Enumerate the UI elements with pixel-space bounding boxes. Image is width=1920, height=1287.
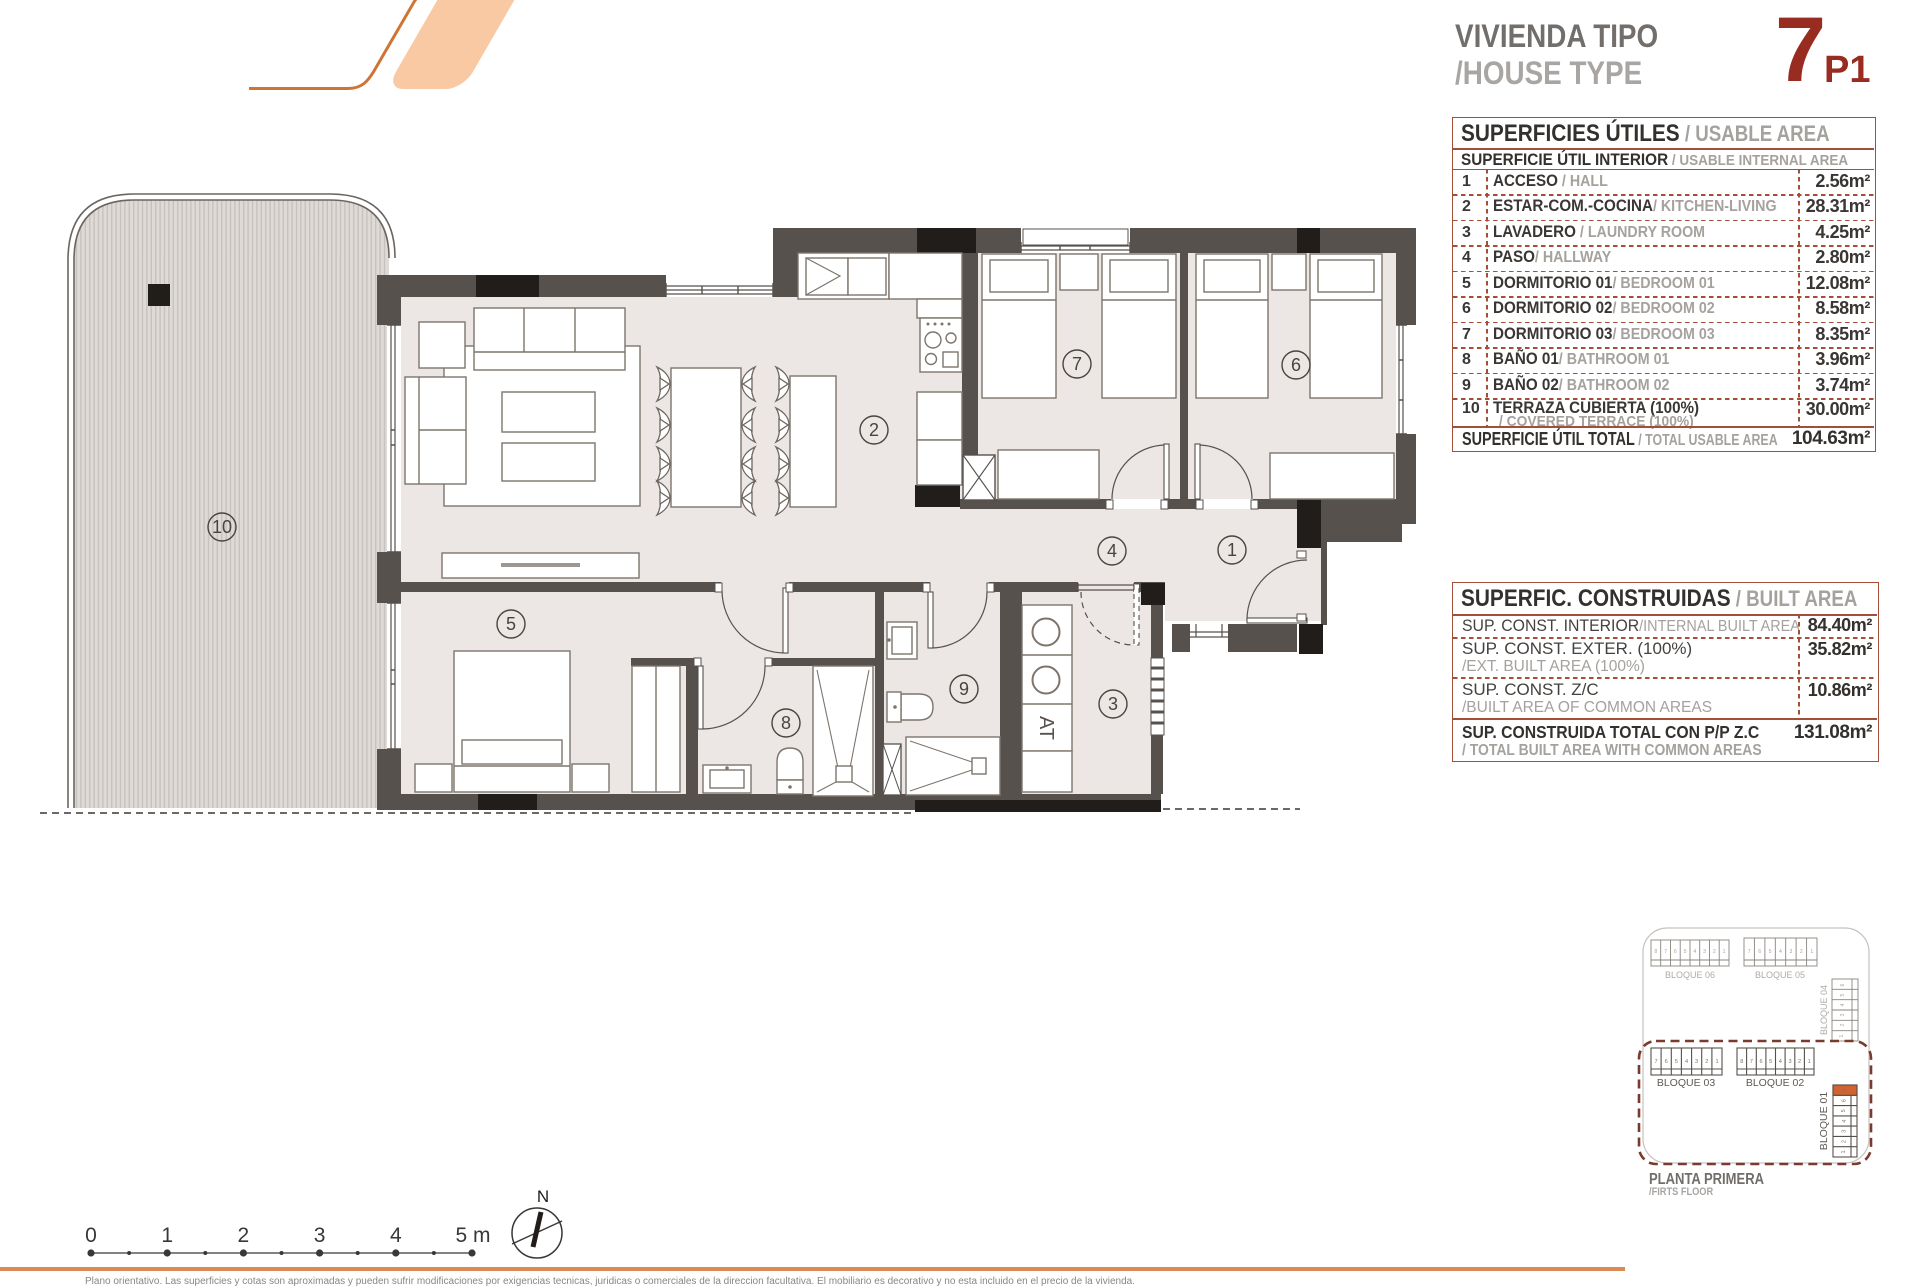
svg-text:6: 6: [1758, 949, 1761, 955]
svg-text:BLOQUE 06: BLOQUE 06: [1665, 970, 1715, 980]
svg-text:7: 7: [1748, 949, 1751, 955]
svg-text:6: 6: [1842, 1099, 1848, 1102]
svg-text:4: 4: [390, 1224, 402, 1247]
svg-text:2: 2: [1840, 1023, 1846, 1026]
svg-text:5: 5: [1684, 949, 1687, 955]
svg-text:4: 4: [1107, 541, 1117, 561]
svg-text:5: 5: [1769, 949, 1772, 955]
svg-text:1: 1: [1808, 1059, 1811, 1065]
svg-text:0: 0: [85, 1224, 97, 1247]
svg-text:2: 2: [869, 420, 879, 440]
svg-text:7: 7: [1664, 949, 1667, 955]
svg-text:7: 7: [1654, 1059, 1657, 1065]
svg-text:BLOQUE 04: BLOQUE 04: [1819, 985, 1829, 1035]
svg-text:4: 4: [1842, 1119, 1848, 1122]
svg-text:2: 2: [1841, 1140, 1847, 1143]
svg-text:7: 7: [1842, 1088, 1848, 1091]
svg-text:3: 3: [1840, 1013, 1846, 1016]
svg-text:1: 1: [1227, 540, 1237, 560]
svg-text:4: 4: [1840, 1003, 1846, 1006]
svg-text:1: 1: [1810, 949, 1813, 955]
svg-text:N: N: [537, 1187, 549, 1206]
svg-text:5: 5: [1841, 1109, 1847, 1112]
svg-text:3: 3: [1108, 694, 1118, 714]
svg-text:5: 5: [506, 614, 516, 634]
svg-text:BLOQUE 05: BLOQUE 05: [1755, 970, 1805, 980]
svg-text:3: 3: [1695, 1059, 1698, 1065]
svg-text:8: 8: [1654, 949, 1657, 955]
svg-text:1: 1: [161, 1224, 173, 1247]
svg-text:1: 1: [1841, 1150, 1847, 1153]
svg-text:5: 5: [1675, 1059, 1678, 1065]
svg-text:2: 2: [238, 1224, 250, 1247]
svg-text:1: 1: [1715, 1059, 1718, 1065]
svg-text:6: 6: [1665, 1059, 1668, 1065]
svg-text:1: 1: [1723, 949, 1726, 955]
svg-text:6: 6: [1291, 355, 1301, 375]
svg-text:8: 8: [1740, 1059, 1743, 1065]
svg-text:2: 2: [1705, 1059, 1708, 1065]
svg-text:4: 4: [1685, 1059, 1688, 1065]
svg-text:4: 4: [1779, 1059, 1782, 1065]
svg-text:4: 4: [1693, 949, 1696, 955]
svg-text:BLOQUE 02: BLOQUE 02: [1746, 1077, 1805, 1089]
svg-text:7: 7: [1072, 354, 1082, 374]
svg-text:3: 3: [1789, 949, 1792, 955]
svg-text:2: 2: [1713, 949, 1716, 955]
svg-text:8: 8: [781, 713, 791, 733]
svg-text:4: 4: [1779, 949, 1782, 955]
svg-text:9: 9: [959, 679, 969, 699]
svg-text:BLOQUE 03: BLOQUE 03: [1657, 1077, 1716, 1089]
svg-text:10: 10: [212, 517, 232, 537]
svg-text:5: 5: [1769, 1059, 1772, 1065]
svg-text:2: 2: [1798, 1059, 1801, 1065]
svg-text:6: 6: [1674, 949, 1677, 955]
svg-text:6: 6: [1760, 1059, 1763, 1065]
svg-text:AT: AT: [1035, 716, 1057, 740]
svg-text:BLOQUE 01: BLOQUE 01: [1818, 1092, 1830, 1151]
svg-text:7: 7: [1750, 1059, 1753, 1065]
svg-text:3: 3: [1703, 949, 1706, 955]
svg-text:1: 1: [1839, 1034, 1845, 1037]
svg-text:6: 6: [1840, 983, 1846, 986]
svg-text:5: 5: [1840, 993, 1846, 996]
svg-text:2: 2: [1800, 949, 1803, 955]
svg-text:3: 3: [1788, 1059, 1791, 1065]
svg-text:5 m: 5 m: [455, 1224, 490, 1247]
svg-text:3: 3: [314, 1224, 326, 1247]
svg-text:3: 3: [1842, 1130, 1848, 1133]
